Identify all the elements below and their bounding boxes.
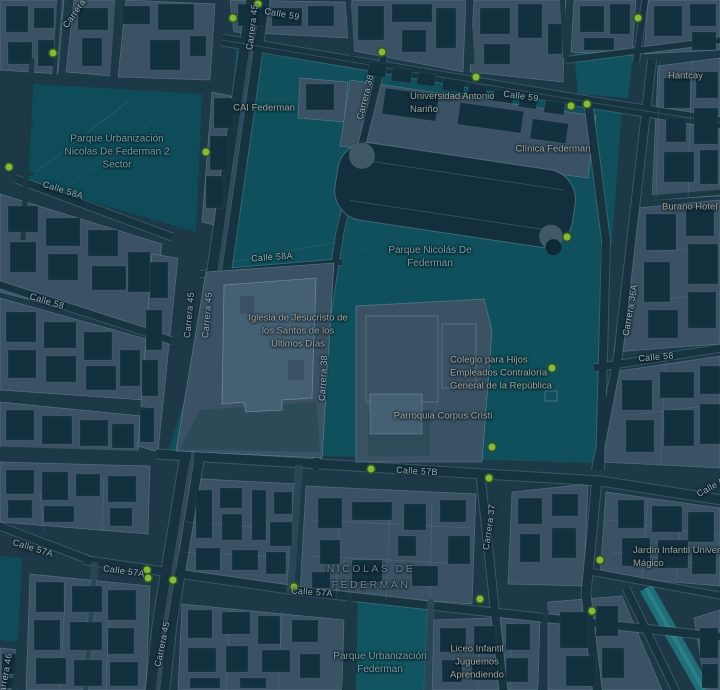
poi-marker <box>634 14 643 23</box>
poi-marker <box>567 102 576 111</box>
poi-marker <box>49 49 58 58</box>
poi-marker <box>596 556 605 565</box>
poi-marker <box>169 576 178 585</box>
map-canvas[interactable]: Carrera 45 Calle 59 Carrera 38 Calle 59 … <box>0 0 720 690</box>
poi-marker <box>367 465 376 474</box>
poi-marker <box>378 48 387 57</box>
poi-marker <box>563 233 572 242</box>
poi-marker <box>548 364 557 373</box>
map-graphics <box>0 0 720 690</box>
poi-marker <box>485 474 494 483</box>
poi-marker <box>583 100 592 109</box>
poi-marker <box>144 574 153 583</box>
poi-marker <box>588 607 597 616</box>
poi-marker <box>202 148 211 157</box>
poi-marker <box>5 163 14 172</box>
poi-marker <box>476 595 485 604</box>
poi-marker <box>488 443 497 452</box>
poi-marker <box>254 0 263 8</box>
poi-marker <box>290 583 299 592</box>
poi-marker <box>472 73 481 82</box>
poi-marker <box>229 14 238 23</box>
